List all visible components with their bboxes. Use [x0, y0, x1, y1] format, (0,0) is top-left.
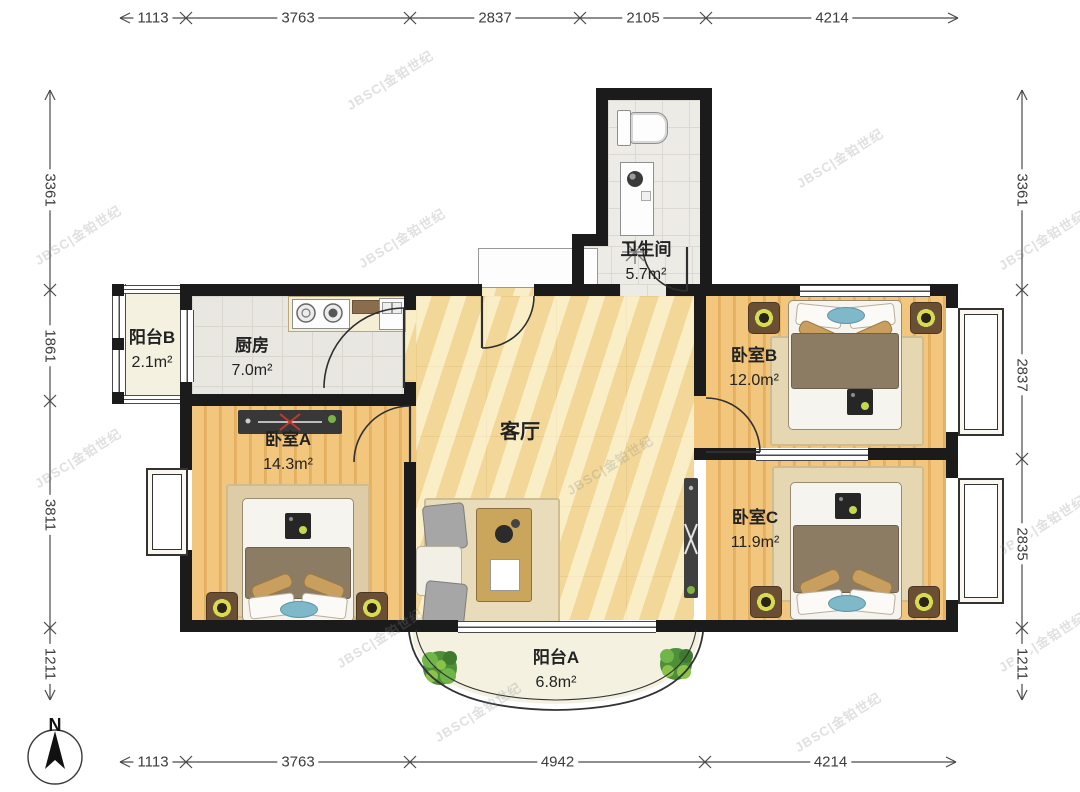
dimension-label: 2837: [474, 10, 515, 27]
dimension-label: 2837: [1014, 354, 1031, 395]
dimension-lines: [0, 0, 1080, 792]
dimension-label: 1211: [1014, 644, 1031, 684]
dimension-label: 4214: [811, 10, 852, 27]
dimension-label: 1113: [133, 10, 172, 27]
dimension-label: 4214: [810, 754, 851, 771]
dimension-label: 1113: [133, 754, 172, 771]
floor-plan: N 阳台B 2.1m² 厨房 7.0m² 卫生间 5.7m² 客厅 卧室A 14…: [0, 0, 1080, 792]
dimension-label: 4942: [537, 754, 578, 771]
dimension-label: 1861: [42, 325, 59, 366]
dimension-label: 3361: [42, 169, 59, 210]
dimension-label: 3361: [1014, 169, 1031, 210]
dimension-label: 3763: [277, 10, 318, 27]
dimension-label: 3763: [277, 754, 318, 771]
dimension-label: 2835: [1014, 523, 1031, 564]
dimension-label: 2105: [622, 10, 663, 27]
dimension-label: 3811: [42, 494, 59, 534]
dimension-label: 1211: [42, 644, 59, 684]
